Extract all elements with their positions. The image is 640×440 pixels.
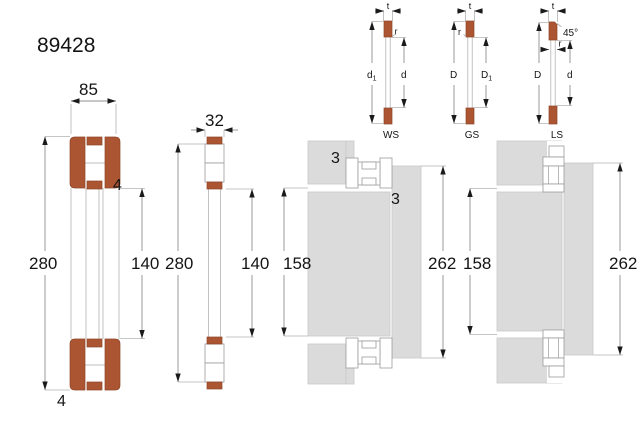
gs-bore-dimension: D1: [474, 38, 492, 108]
mount2-seat-label: 158: [463, 254, 491, 273]
roller-section: [205, 363, 224, 382]
washer-section: [346, 338, 358, 368]
cage-width-dim-label: 32: [205, 111, 224, 130]
cage-assembly-drawing: 32 280 140: [165, 111, 269, 389]
shaft-washer-section-bottom: [70, 339, 85, 390]
ls-washer-drawing: t 45° r D d LS: [534, 1, 578, 141]
outer-dim-label: 280: [29, 254, 57, 273]
mount2-housing-dimension: 262: [593, 163, 637, 355]
diagram-canvas: 89428 85 280: [0, 0, 640, 440]
mount1-seat-label: 158: [283, 254, 311, 273]
cage-strip: [207, 337, 222, 344]
gs-washer-drawing: t r D D1 GS: [450, 1, 492, 141]
face-lines: [71, 188, 119, 339]
mount-arrangement-ws: 3 3 158 262: [283, 141, 456, 384]
washer-section: [543, 157, 564, 166]
gs-bore-label: D1: [481, 70, 492, 83]
ls-outer-dimension: D: [534, 23, 549, 124]
ls-washer-chamfered: [549, 22, 557, 40]
mount1-seat-dimension: 158: [283, 188, 311, 336]
mount-arrangement-gs-ls: 158 262: [463, 141, 637, 383]
ls-bore-dimension: d: [557, 41, 573, 106]
cage-section: [362, 178, 376, 185]
roller-section: [205, 163, 224, 182]
ws-washer-drawing: t r d1 d WS: [367, 1, 407, 141]
shaft-shoulder: [308, 141, 346, 184]
width-dimension: 85: [71, 80, 116, 134]
step-dim-bottom-label: 4: [57, 393, 66, 410]
ls-outer-label: D: [534, 70, 541, 81]
step-dim-top-label: 4: [113, 177, 122, 194]
ws-thickness-label: t: [387, 1, 390, 11]
shaft-washer-section-top: [70, 137, 85, 188]
cage-bore-dimension: 140: [226, 189, 269, 337]
ws-radius-label: r: [395, 27, 398, 37]
bearing-drawing-page: 89428 85 280: [0, 0, 640, 440]
ls-caption: LS: [551, 130, 564, 141]
cage-width-dimension: 32: [191, 111, 238, 137]
washers-and-cage: [70, 137, 120, 390]
cage-strip: [87, 339, 102, 347]
roller-section: [205, 344, 224, 363]
bore-dim-label: 140: [131, 254, 159, 273]
ws-bore-label: d: [401, 70, 407, 81]
roller-section: [543, 166, 564, 184]
ws-caption: WS: [383, 130, 399, 141]
gs-caption: GS: [465, 130, 480, 141]
shoulder-ledge: [346, 367, 354, 384]
cage-strip: [207, 137, 222, 144]
cage-strip: [87, 181, 102, 189]
mount1-housing-label: 262: [428, 254, 456, 273]
cage-strip: [87, 382, 102, 390]
washer-section: [380, 338, 392, 368]
washer-section: [380, 158, 392, 188]
recess-width-label: 3: [331, 150, 340, 167]
width-dim-label: 85: [79, 80, 98, 99]
washer-section: [346, 158, 358, 188]
roller-section: [205, 144, 224, 163]
shaft-body: [308, 192, 390, 336]
mount1-housing-dimension: 262: [421, 166, 456, 358]
ws-outer-label: d1: [367, 70, 377, 83]
cage-section: [362, 162, 376, 169]
gs-washer-sections: [466, 21, 474, 124]
mount2-seat-dimension: 158: [463, 189, 497, 335]
cage-strip: [207, 382, 222, 389]
ls-washer-section: [549, 146, 564, 157]
shoulder-ledge: [346, 141, 354, 158]
ls-thickness-label: t: [552, 1, 555, 11]
part-number-title: 89428: [37, 34, 95, 57]
ls-washer-sections: [549, 22, 557, 124]
ws-bore-dimension: d: [392, 38, 407, 108]
roller-mid-lines: [85, 163, 105, 365]
cage-outer-dim-label: 280: [165, 254, 193, 273]
main-bearing-drawing: 85 280 140 4: [29, 80, 159, 410]
washer-section: [543, 184, 564, 192]
bore-dimension: 140: [120, 189, 159, 339]
ls-washer-section: [549, 366, 564, 377]
housing-block: [497, 192, 562, 331]
housing-washer-section-bottom: [105, 339, 120, 390]
outer-dimension: 280: [29, 137, 70, 391]
gs-thickness-label: t: [469, 1, 472, 11]
gs-radius-label: r: [458, 27, 461, 37]
shaft-shoulder: [308, 344, 346, 384]
cage-strip: [87, 137, 102, 145]
cage-strip: [207, 182, 222, 189]
gs-outer-label: D: [450, 70, 457, 81]
recess-height-label: 3: [391, 191, 400, 208]
cage-bore-dim-label: 140: [241, 254, 269, 273]
roller-section: [543, 338, 564, 358]
face-lines: [209, 189, 221, 337]
cage-outer-dimension: 280: [165, 144, 205, 382]
cage-section: [362, 341, 376, 348]
ls-bore-label: d: [567, 70, 573, 81]
ws-outer-dimension: d1: [367, 22, 384, 124]
shaft-column: [564, 163, 593, 355]
ws-washer-sections: [384, 21, 392, 124]
washer-section: [543, 358, 564, 366]
mount2-housing-label: 262: [609, 254, 637, 273]
ls-chamfer-label: 45°: [563, 28, 578, 39]
cage-section: [362, 357, 376, 364]
ls-radius-label: r: [559, 39, 562, 49]
washer-section: [543, 330, 564, 338]
